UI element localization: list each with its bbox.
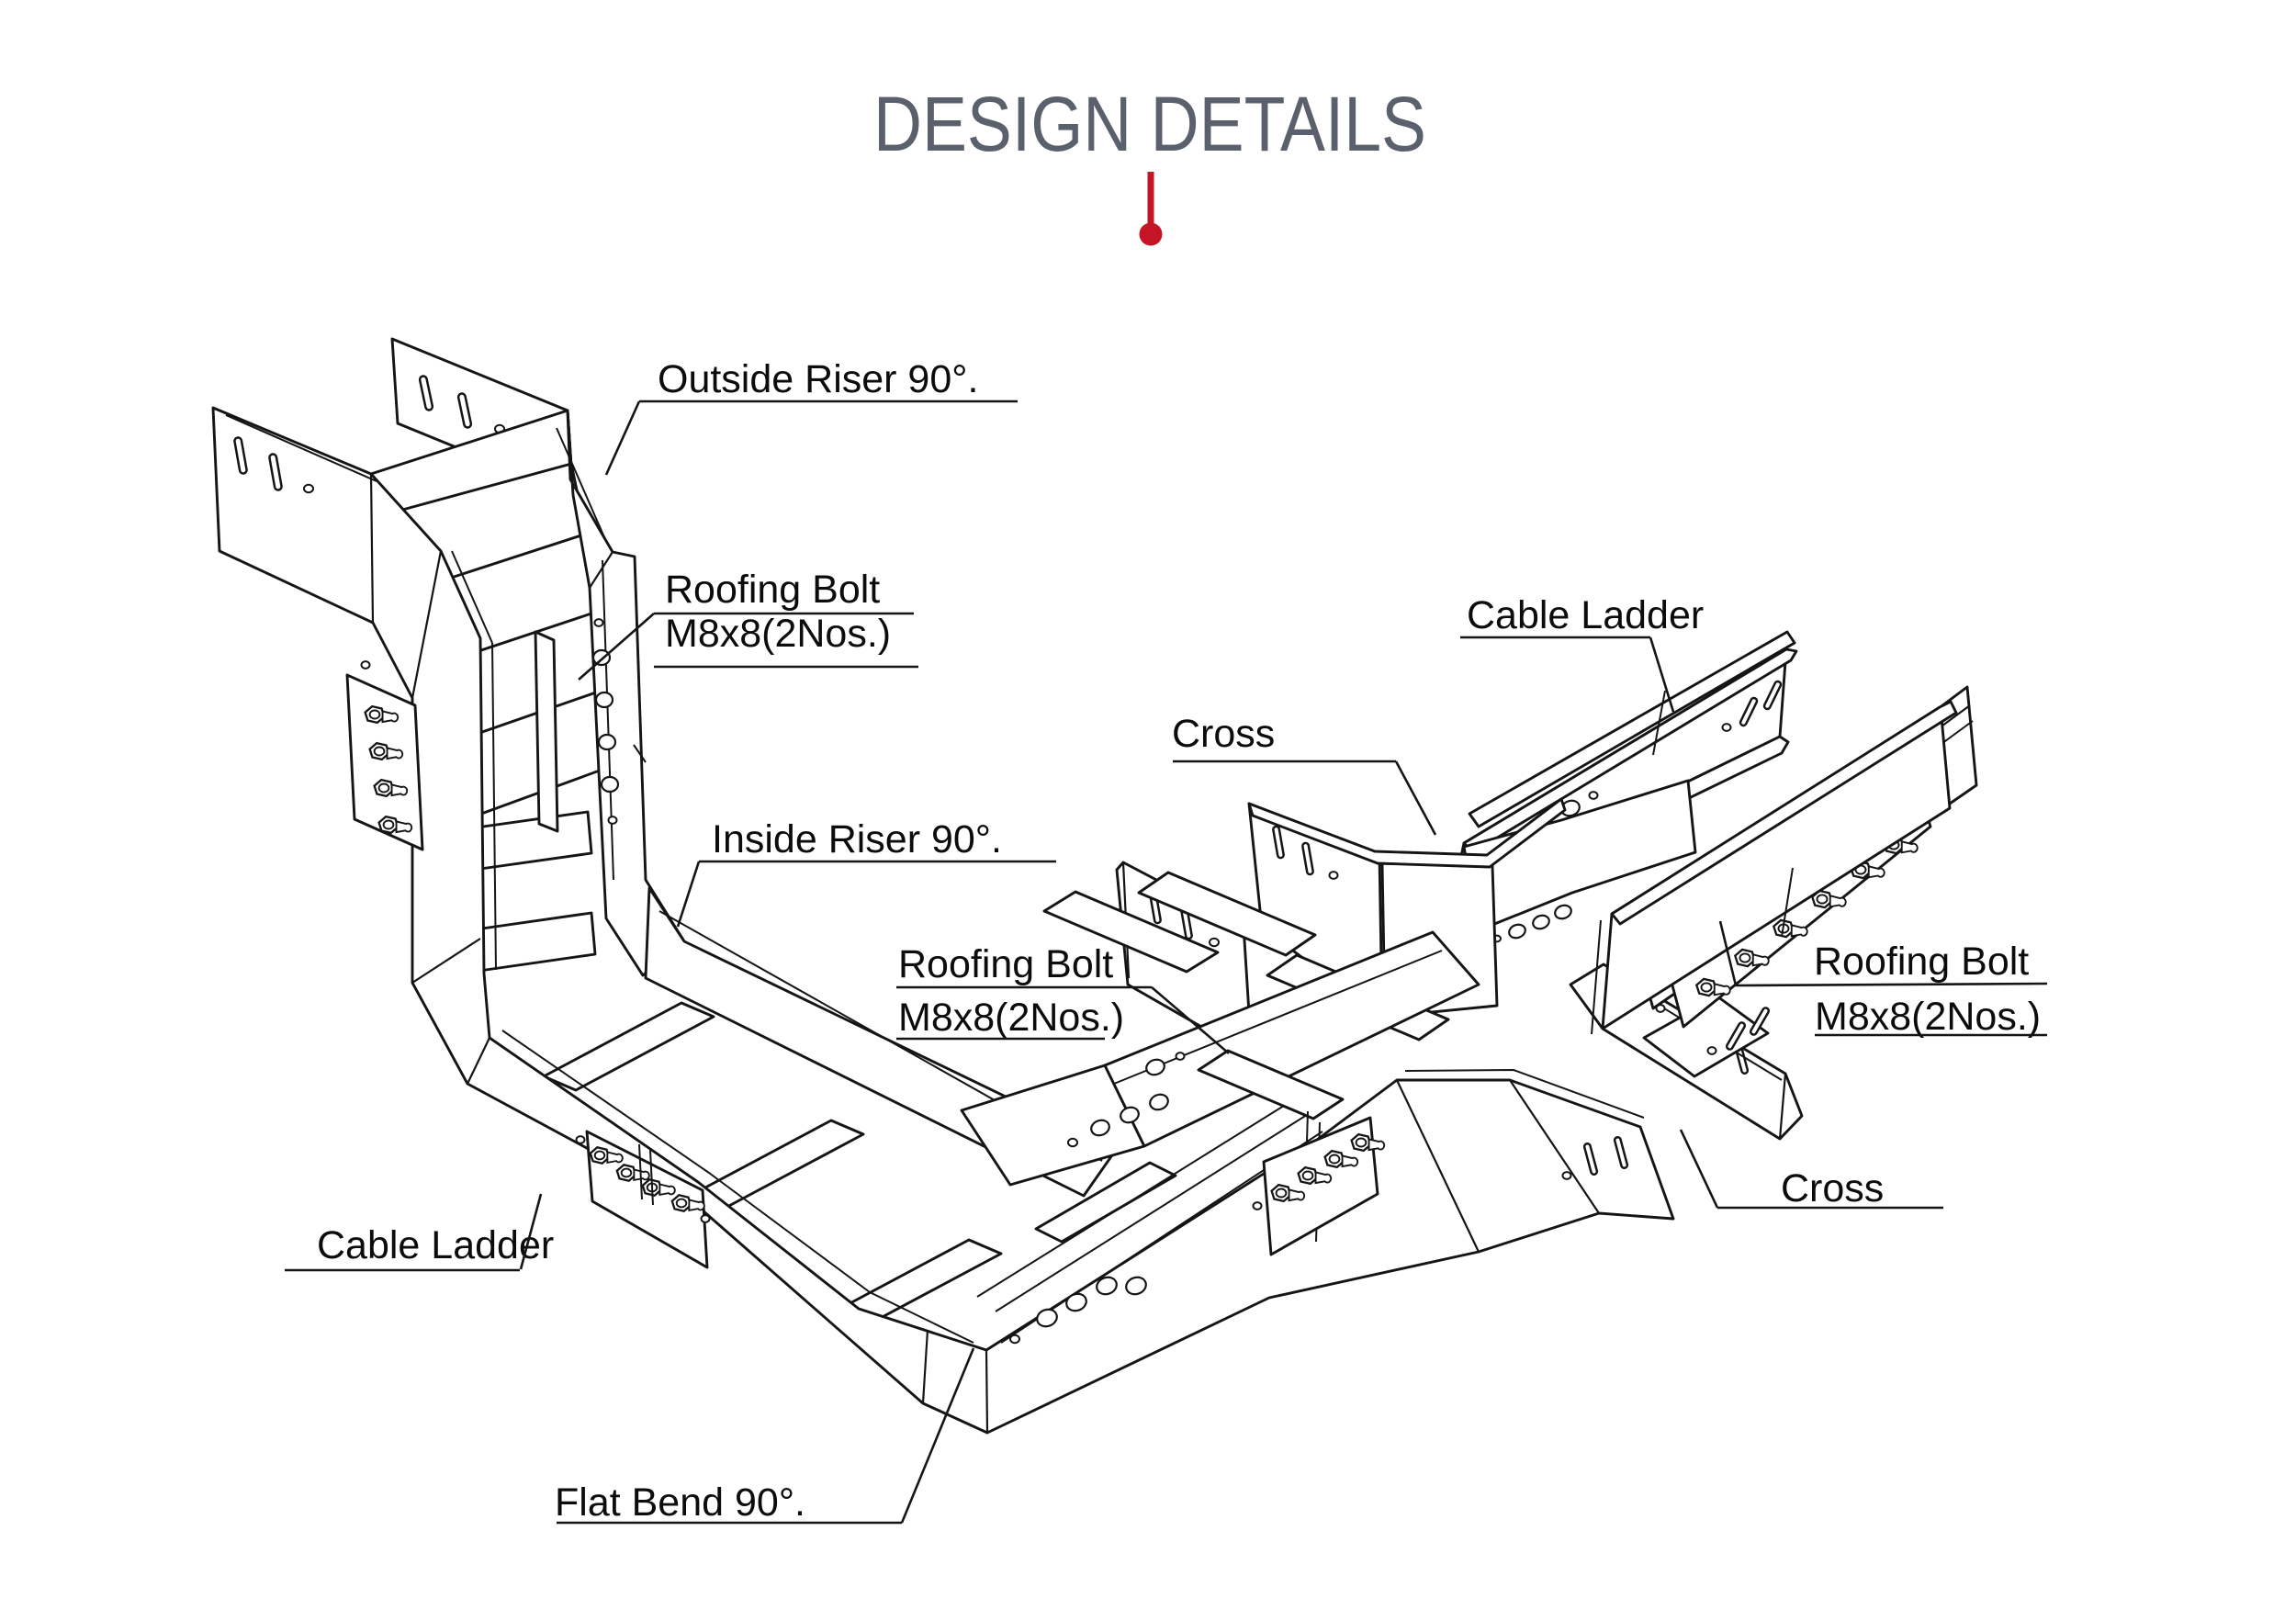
svg-text:Outside Riser 90°.: Outside Riser 90°. (658, 357, 978, 401)
svg-text:M8x8(2Nos.): M8x8(2Nos.) (1815, 995, 2041, 1039)
svg-text:DESIGN DETAILS: DESIGN DETAILS (873, 81, 1426, 167)
svg-text:Cross: Cross (1781, 1166, 1884, 1210)
svg-text:Inside Riser 90°.: Inside Riser 90°. (712, 817, 1002, 861)
svg-text:M8x8(2Nos.): M8x8(2Nos.) (898, 996, 1124, 1040)
svg-text:Roofing Bolt: Roofing Bolt (665, 568, 880, 612)
svg-text:Roofing Bolt: Roofing Bolt (898, 942, 1113, 986)
svg-text:Cross: Cross (1172, 712, 1275, 756)
svg-text:Roofing Bolt: Roofing Bolt (1814, 940, 2029, 984)
svg-text:Flat Bend 90°.: Flat Bend 90°. (555, 1480, 805, 1525)
svg-text:Cable Ladder: Cable Ladder (1467, 593, 1704, 637)
svg-text:Cable Ladder: Cable Ladder (317, 1223, 554, 1267)
svg-text:M8x8(2Nos.): M8x8(2Nos.) (665, 612, 891, 656)
